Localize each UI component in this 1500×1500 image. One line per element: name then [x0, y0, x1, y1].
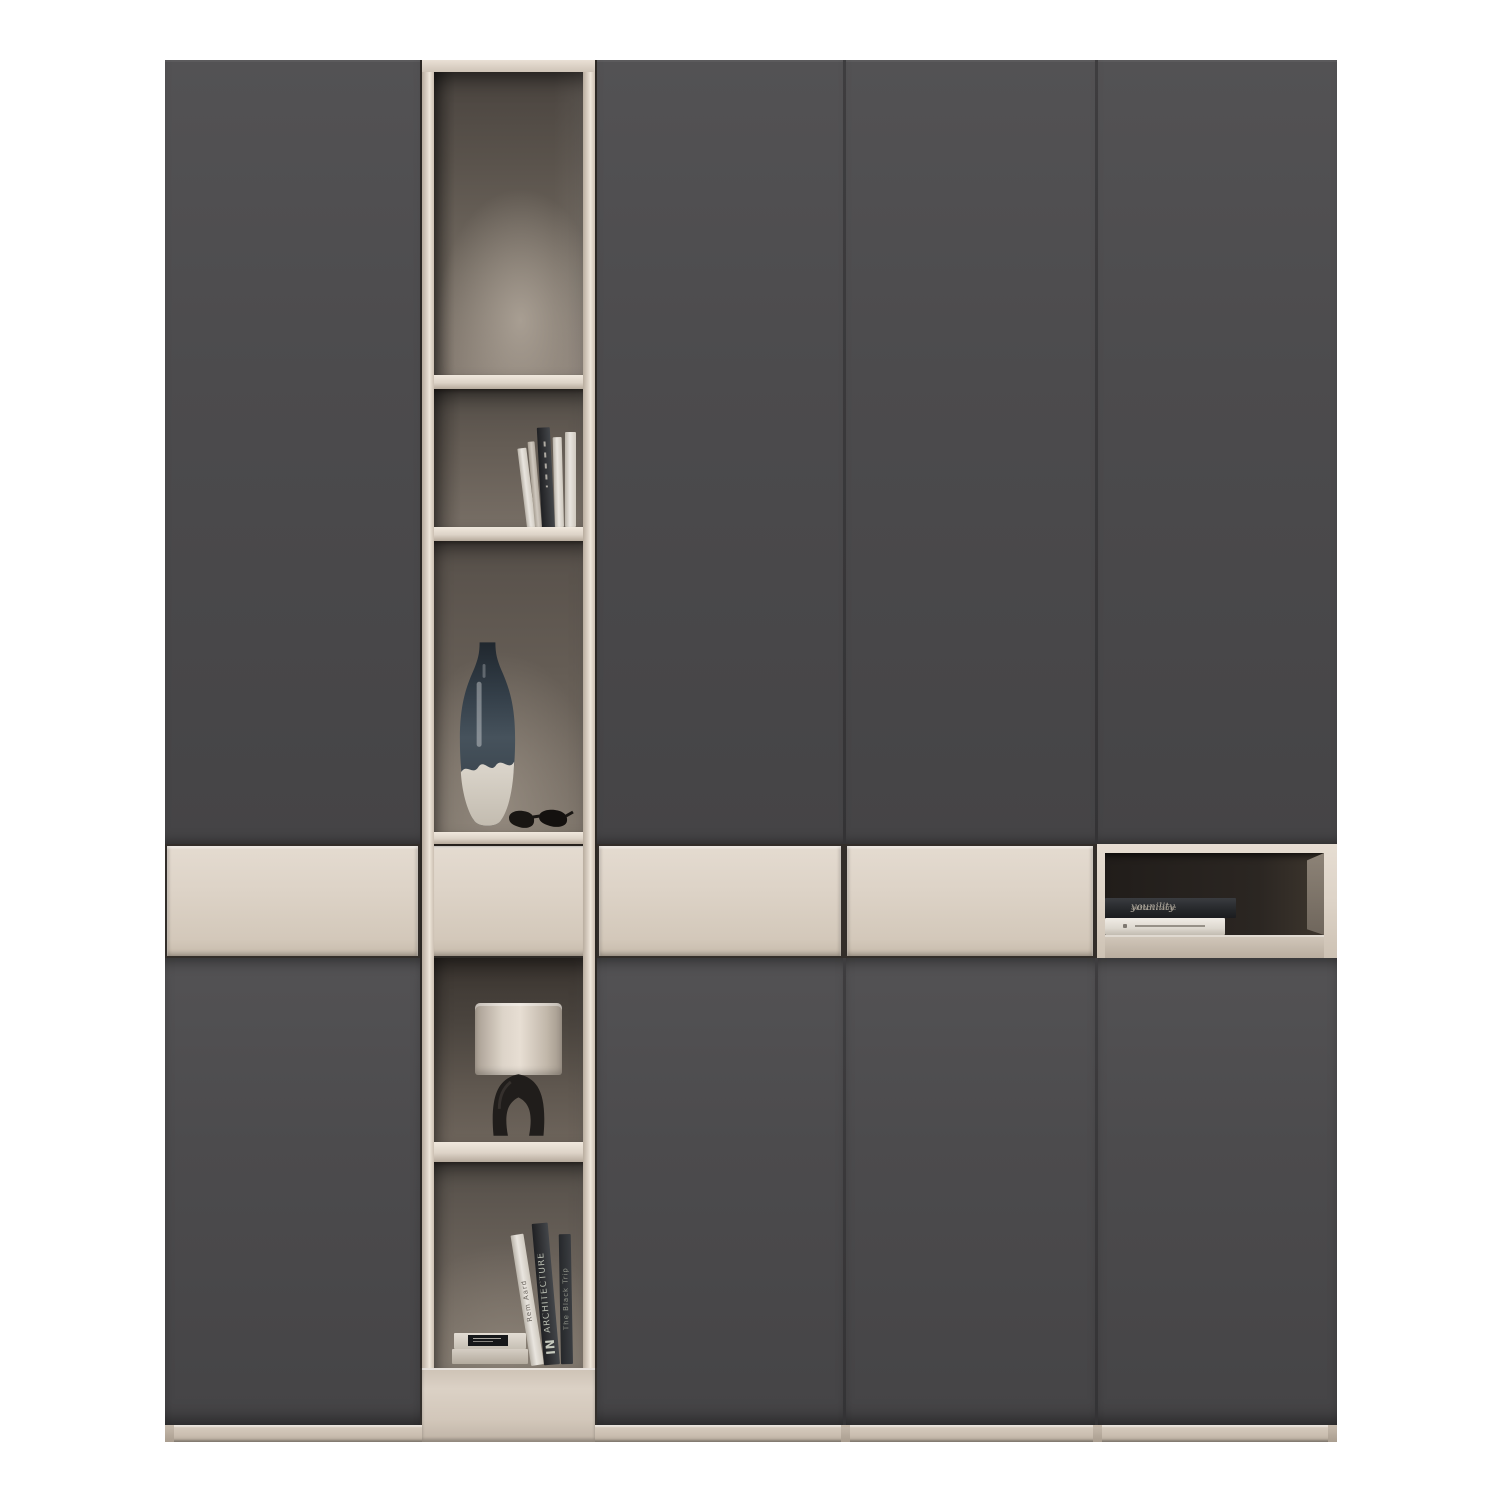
column-side-panel-left — [422, 60, 434, 1368]
drawer-3 — [847, 846, 1093, 956]
spine-text-marks — [543, 441, 547, 487]
door-top-1 — [165, 60, 422, 844]
drawer-band: younility author name — [165, 844, 1337, 958]
book-author: author name — [1131, 905, 1176, 912]
column-side-panel-right — [583, 60, 595, 1368]
door-seam — [1095, 60, 1098, 844]
wardrobe: younility author name — [165, 60, 1337, 1442]
spine-text-line — [1135, 925, 1205, 927]
cubby-vase — [434, 541, 583, 832]
plinth — [167, 1425, 1335, 1442]
leaning-books: Rem Aard ARCHITECTURE IN The Black Trip — [531, 1216, 577, 1364]
book-spine — [565, 432, 576, 527]
shelf-column-base — [422, 1368, 595, 1442]
shelf-edge — [432, 832, 585, 844]
door-top-2 — [595, 60, 845, 844]
open-shelf-column: Rem Aard ARCHITECTURE IN The Black Trip — [422, 60, 595, 1442]
lamp-base — [482, 1074, 555, 1138]
drawer-shelf-column — [430, 846, 587, 956]
label-line — [473, 1338, 501, 1339]
door-top-4 — [1097, 60, 1337, 844]
door-seam — [1095, 958, 1098, 1425]
cubby-books-upper — [434, 389, 583, 527]
book-spine-black-trip: The Black Trip — [559, 1234, 573, 1364]
shelf — [432, 527, 585, 541]
column-top-panel — [422, 60, 595, 72]
book-subtitle: IN — [543, 1332, 557, 1355]
niche-book-white — [1105, 918, 1225, 935]
door-bottom-3 — [845, 958, 1097, 1425]
sunglasses — [505, 808, 575, 830]
product-photo: younility author name — [0, 0, 1500, 1500]
cabinet-foot — [841, 1425, 850, 1442]
door-seam — [843, 958, 846, 1425]
door-bottom-4 — [1097, 958, 1337, 1425]
book-spine — [553, 437, 564, 527]
shelf — [432, 375, 585, 389]
book-title: ARCHITECTURE — [535, 1229, 553, 1333]
spine-mark — [1123, 924, 1127, 928]
niche-interior: younility author name — [1105, 853, 1324, 935]
book-cover-label — [468, 1335, 508, 1346]
standing-books — [527, 423, 577, 527]
cubby-books-lower: Rem Aard ARCHITECTURE IN The Black Trip — [434, 1162, 583, 1368]
niche-sill — [1105, 935, 1324, 958]
cabinet-foot — [1093, 1425, 1102, 1442]
door-seam — [843, 60, 846, 844]
cabinet-foot — [165, 1425, 174, 1442]
door-bottom-1 — [165, 958, 422, 1425]
drawer-1 — [167, 846, 418, 956]
flat-book-top — [454, 1333, 526, 1349]
label-line — [473, 1341, 493, 1342]
door-bottom-2 — [595, 958, 845, 1425]
stacked-books — [452, 1332, 528, 1364]
niche-side-wall — [1307, 853, 1324, 935]
door-top-3 — [845, 60, 1097, 844]
shelf — [432, 1142, 585, 1162]
niche-book-dark: younility author name — [1105, 898, 1236, 918]
cubby-empty — [434, 72, 583, 375]
table-lamp — [475, 1003, 562, 1139]
book-title: Rem Aard — [515, 1242, 534, 1322]
open-niche: younility author name — [1097, 844, 1337, 958]
two-tone-vase — [452, 640, 523, 832]
lamp-shade — [475, 1003, 562, 1075]
drawer-2 — [599, 846, 841, 956]
book-title: The Black Trip — [562, 1244, 570, 1330]
flat-book-bottom — [452, 1349, 528, 1364]
cabinet-foot — [1328, 1425, 1337, 1442]
cubby-lamp — [434, 958, 583, 1142]
